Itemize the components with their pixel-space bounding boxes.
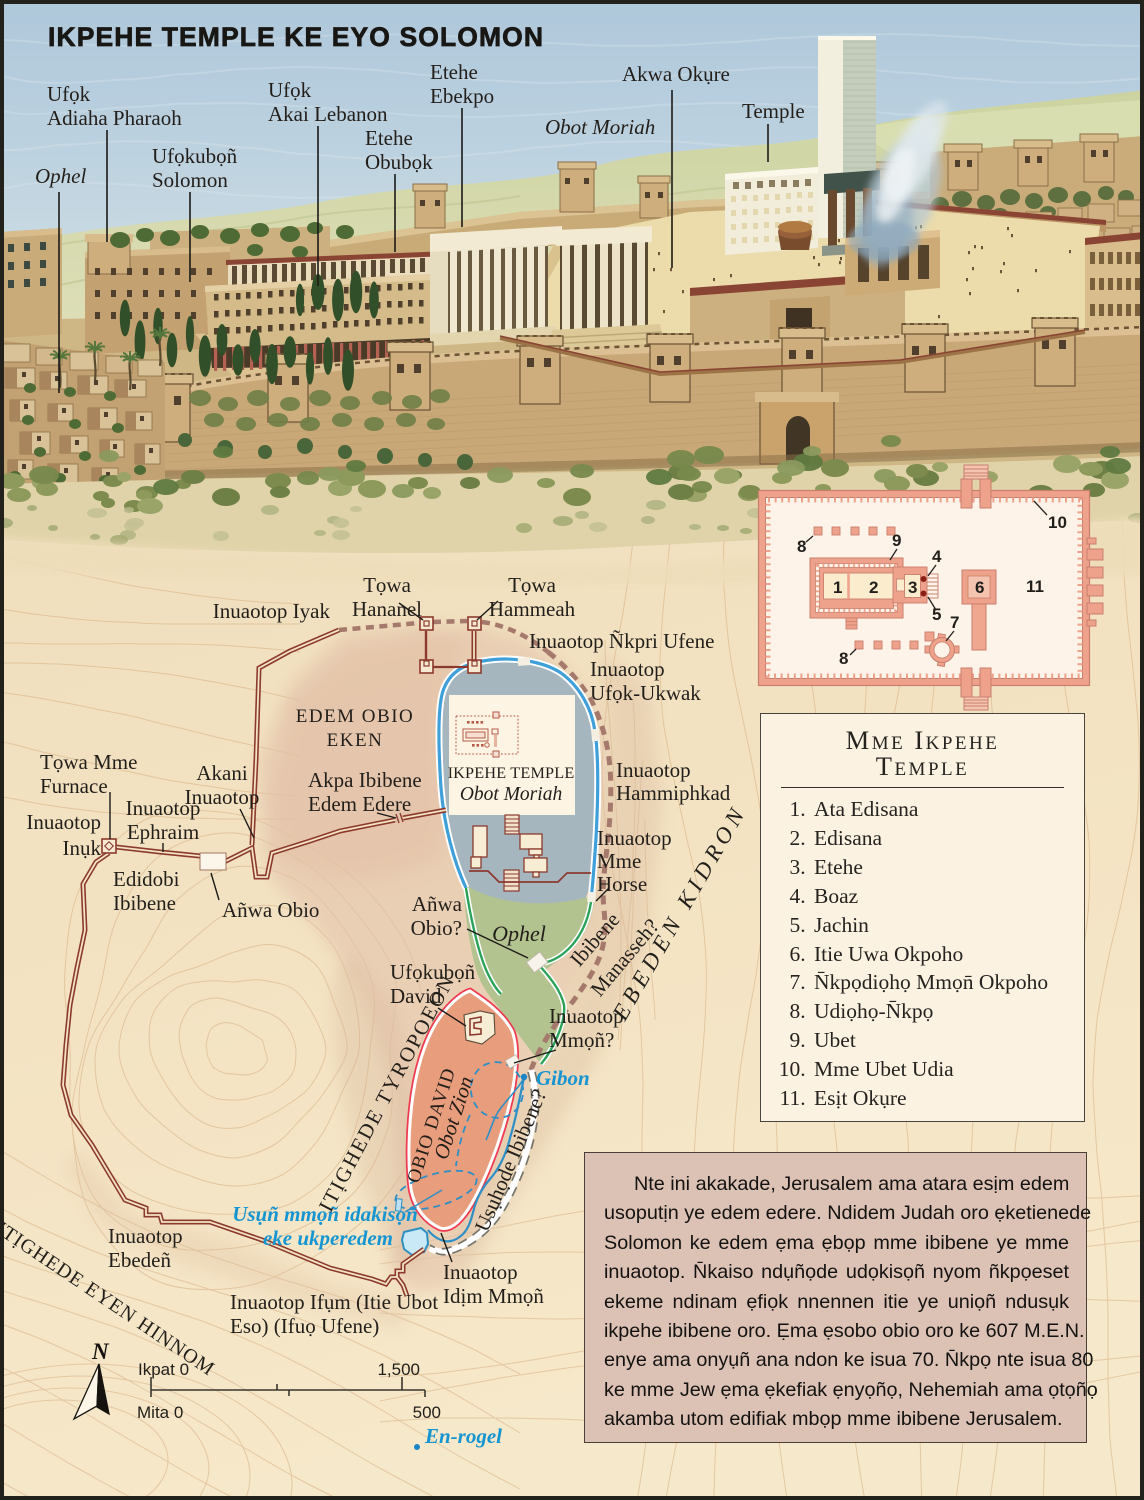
svg-text:Ikpat 0: Ikpat 0 (138, 1360, 189, 1379)
svg-text:Obubọk: Obubọk (365, 150, 433, 174)
svg-text:IKPEHE TEMPLE: IKPEHE TEMPLE (448, 764, 575, 782)
svg-text:Solomon: Solomon (152, 168, 228, 192)
svg-text:Inuaotop Ñkpri Ufene: Inuaotop Ñkpri Ufene (529, 629, 714, 653)
svg-text:Obio?: Obio? (411, 916, 462, 940)
svg-text:EDEM OBIO: EDEM OBIO (296, 706, 415, 727)
svg-text:7: 7 (950, 613, 959, 632)
svg-text:Hammiphkad: Hammiphkad (616, 781, 731, 805)
svg-text:1,500: 1,500 (377, 1360, 420, 1379)
svg-text:6: 6 (975, 578, 984, 597)
svg-text:Idịm Mmọñ: Idịm Mmọñ (443, 1284, 544, 1308)
svg-text:Ebekpo: Ebekpo (430, 84, 494, 108)
svg-text:Inuaotop Iyak: Inuaotop Iyak (213, 599, 331, 623)
svg-text:Tọwa: Tọwa (508, 573, 556, 597)
svg-text:10: 10 (1048, 513, 1067, 532)
svg-text:Akpa Ibibene: Akpa Ibibene (308, 768, 422, 792)
svg-text:Akai Lebanon: Akai Lebanon (268, 102, 388, 126)
svg-text:Ufọk-Ukwak: Ufọk-Ukwak (590, 681, 701, 705)
svg-text:Tọwa Mme: Tọwa Mme (40, 750, 137, 774)
svg-text:Inuaotop: Inuaotop (126, 796, 201, 820)
svg-text:2: 2 (869, 578, 878, 597)
svg-text:Adiaha Pharaoh: Adiaha Pharaoh (47, 106, 182, 130)
svg-text:1: 1 (833, 578, 842, 597)
svg-text:Ebedeñ: Ebedeñ (108, 1248, 171, 1272)
svg-text:Inuaotop: Inuaotop (443, 1260, 518, 1284)
svg-text:Inuaotop: Inuaotop (108, 1224, 183, 1248)
svg-text:Edem Edere: Edem Edere (308, 792, 411, 816)
svg-text:5: 5 (932, 605, 941, 624)
svg-text:IKPEHE TEMPLE KE EYO SOLOMON: IKPEHE TEMPLE KE EYO SOLOMON (48, 22, 544, 52)
svg-text:Akwa Okụre: Akwa Okụre (622, 62, 730, 86)
svg-text:Mme: Mme (597, 849, 641, 873)
svg-text:Mmọñ?: Mmọñ? (549, 1028, 614, 1052)
svg-text:Ufọk: Ufọk (268, 78, 312, 102)
svg-text:Ufọk: Ufọk (47, 82, 91, 106)
svg-text:Gibon: Gibon (536, 1066, 590, 1090)
svg-text:Furnace: Furnace (40, 774, 108, 798)
svg-text:Ophel: Ophel (35, 164, 86, 188)
svg-text:Ophel: Ophel (492, 921, 546, 946)
svg-text:Hammeah: Hammeah (489, 597, 576, 621)
svg-text:EKEN: EKEN (327, 730, 384, 751)
svg-text:Obot Moriah: Obot Moriah (545, 115, 655, 139)
svg-text:Horse: Horse (597, 872, 647, 896)
svg-text:Akani: Akani (196, 761, 247, 785)
svg-text:Eso) (Ifuọ Ufene): Eso) (Ifuọ Ufene) (230, 1314, 379, 1338)
svg-text:Mita 0: Mita 0 (137, 1403, 183, 1422)
svg-text:Tọwa: Tọwa (363, 573, 411, 597)
svg-text:En-rogel: En-rogel (424, 1424, 502, 1448)
svg-text:eke ukperedem: eke ukperedem (263, 1226, 393, 1250)
svg-text:4: 4 (932, 547, 942, 566)
svg-text:Inuaotop Ifụm (Itie Ubot: Inuaotop Ifụm (Itie Ubot (230, 1290, 438, 1314)
svg-text:9: 9 (892, 531, 901, 550)
svg-text:Inuaotop: Inuaotop (26, 810, 101, 834)
svg-text:11: 11 (1026, 577, 1044, 596)
svg-text:Inuaotop: Inuaotop (616, 758, 691, 782)
svg-text:500: 500 (413, 1403, 441, 1422)
svg-text:Etehe: Etehe (365, 126, 413, 150)
svg-text:Inuaotop: Inuaotop (597, 826, 672, 850)
svg-text:3: 3 (908, 578, 917, 597)
svg-text:8: 8 (797, 537, 806, 556)
svg-text:Añwa: Añwa (412, 892, 463, 916)
svg-text:Ufọkubọñ: Ufọkubọñ (152, 144, 238, 168)
svg-text:Edidobi: Edidobi (113, 867, 180, 891)
svg-text:8: 8 (839, 649, 848, 668)
svg-text:Ephraim: Ephraim (127, 820, 199, 844)
svg-text:Inụk: Inụk (63, 836, 102, 860)
svg-text:Obot Moriah: Obot Moriah (460, 784, 562, 805)
svg-text:Añwa Obio: Añwa Obio (222, 898, 319, 922)
svg-text:Hananel: Hananel (352, 597, 422, 621)
svg-text:Etehe: Etehe (430, 60, 478, 84)
svg-text:Inuaotop: Inuaotop (590, 657, 665, 681)
svg-text:N: N (91, 1339, 110, 1364)
svg-text:Ibibene: Ibibene (113, 891, 176, 915)
svg-text:Temple: Temple (742, 99, 805, 123)
